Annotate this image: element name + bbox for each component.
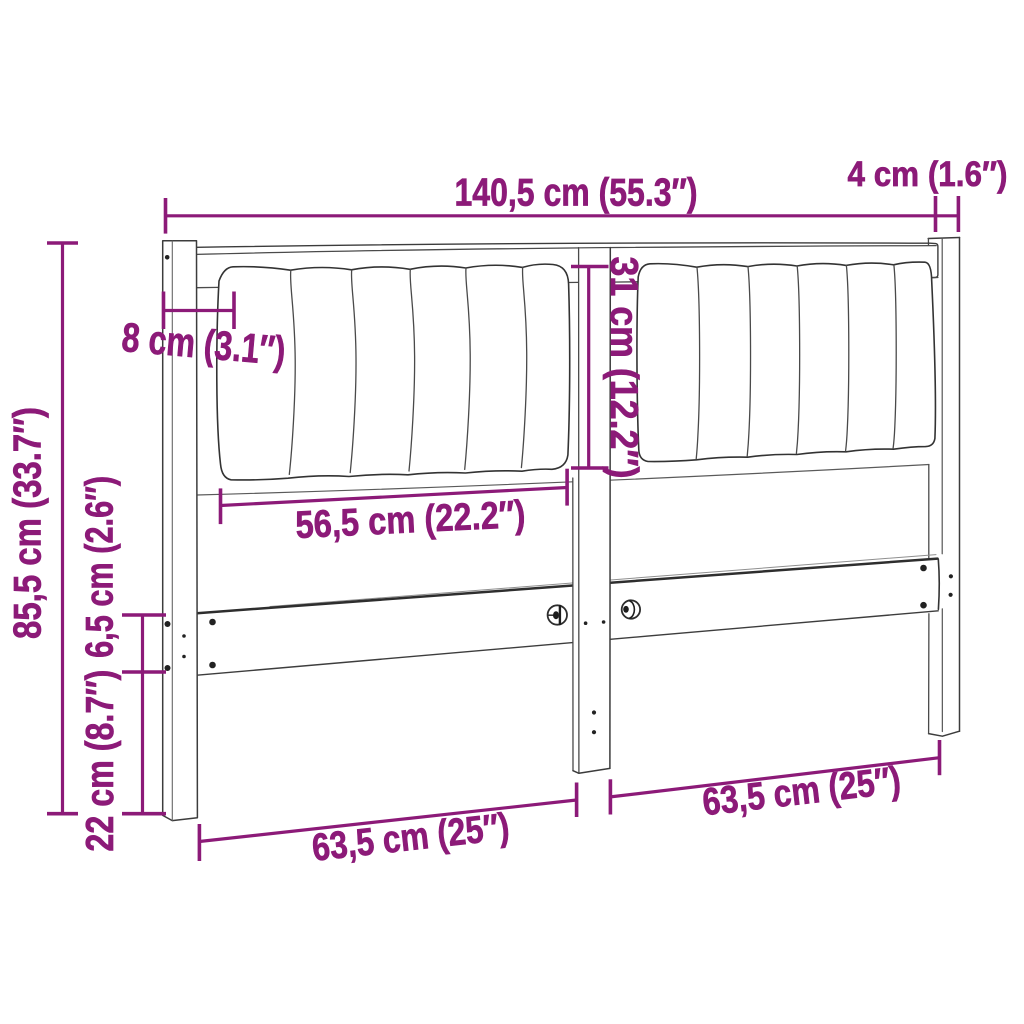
svg-text:4 cm (1.6″): 4 cm (1.6″) [848,154,1008,194]
svg-text:140,5 cm (55.3″): 140,5 cm (55.3″) [455,172,698,215]
svg-text:22 cm (8.7″): 22 cm (8.7″) [79,670,122,852]
svg-text:6,5 cm (2.6″): 6,5 cm (2.6″) [79,476,122,658]
svg-text:31 cm (12.2″): 31 cm (12.2″) [602,257,645,479]
svg-text:85,5 cm (33.7″): 85,5 cm (33.7″) [7,407,50,639]
